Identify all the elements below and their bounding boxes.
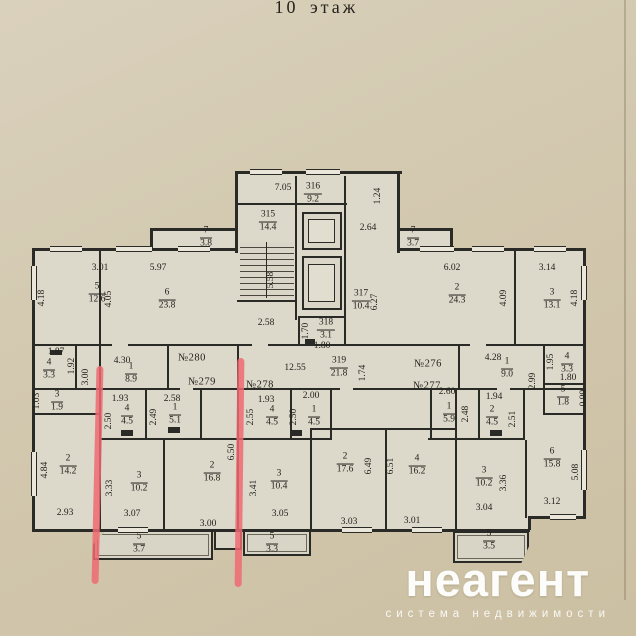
wall <box>237 438 332 440</box>
dim-label: 3.01 <box>92 264 109 274</box>
window <box>420 246 454 252</box>
room-label: 310.2 <box>476 467 493 490</box>
window <box>412 527 442 533</box>
doorway <box>252 344 268 346</box>
dim-label: 4.09 <box>500 290 510 307</box>
wall <box>200 390 202 440</box>
window <box>472 246 504 252</box>
dim-label: 2.49 <box>150 409 160 426</box>
room-label: 416.2 <box>409 455 426 478</box>
room-label: 512.6 <box>89 283 106 306</box>
room-label: 19.0 <box>501 358 513 381</box>
room-label: 217.6 <box>337 453 354 476</box>
window <box>31 452 37 496</box>
wall <box>385 428 387 530</box>
wall <box>163 440 165 530</box>
dim-label: 2.00 <box>303 392 320 402</box>
dim-label: 3.07 <box>124 510 141 520</box>
doorway <box>180 388 193 390</box>
floorplan-photo: 10 этаж <box>0 0 636 636</box>
dim-label: 2.51 <box>509 411 519 428</box>
room-label: 15.9 <box>443 403 455 426</box>
dim-label: 2.48 <box>462 406 472 423</box>
photo-edge-line <box>624 0 626 600</box>
room-label: 15.1 <box>169 404 181 427</box>
window <box>116 246 152 252</box>
wall <box>310 428 312 530</box>
room-label: 44.5 <box>121 405 133 428</box>
dim-label: 3.12 <box>544 498 561 508</box>
dim-label: 6.27 <box>371 294 381 311</box>
wall <box>310 428 457 430</box>
wall <box>514 250 516 346</box>
wall <box>295 176 297 320</box>
dim-label: 0.99 <box>580 390 590 407</box>
dim-label: 2.93 <box>57 509 74 519</box>
dim-label: 3.00 <box>82 369 92 386</box>
dim-label: 3.36 <box>500 475 510 492</box>
wall <box>167 344 169 390</box>
dim-label: 4.18 <box>571 290 581 307</box>
dim-label: 6.51 <box>387 458 397 475</box>
dim-label: 3.05 <box>272 510 289 520</box>
dim-label: 1.95 <box>547 354 557 371</box>
dim-label: 1.94 <box>486 393 503 403</box>
dim-label: 3.33 <box>106 480 116 497</box>
dim-label: 5.97 <box>150 264 167 274</box>
room-label: 73.7 <box>407 227 419 250</box>
wall <box>145 390 147 440</box>
wall <box>235 171 238 253</box>
unit-number: №278 <box>246 379 274 390</box>
balcony-bottom-left <box>93 530 213 560</box>
door-leaf <box>168 427 180 433</box>
dim-label: 3.00 <box>200 520 217 530</box>
window <box>550 514 576 520</box>
room-label: 14.5 <box>308 406 320 429</box>
wall <box>99 438 239 440</box>
room-label: 310.2 <box>131 472 148 495</box>
room-label: 31921.8 <box>330 357 348 380</box>
floor-title: 10 этаж <box>274 0 358 18</box>
wall <box>543 344 545 415</box>
dim-label: 1.80 <box>560 374 577 384</box>
wall <box>237 203 347 205</box>
dim-label: 2.64 <box>360 224 377 234</box>
window <box>306 169 340 175</box>
wall <box>237 300 297 302</box>
dim-label: 6.02 <box>444 264 461 274</box>
unit-number: №276 <box>414 358 442 369</box>
dim-label: 3.14 <box>539 264 556 274</box>
dim-label: 2.99 <box>529 373 539 390</box>
dim-label: 3.41 <box>250 480 260 497</box>
dim-label: 1.74 <box>359 365 369 382</box>
room-label: 313.1 <box>544 289 561 312</box>
wall <box>528 516 531 530</box>
room-label: 214.2 <box>60 455 77 478</box>
elevator-car <box>308 264 335 302</box>
dim-label: 3.01 <box>404 517 421 527</box>
room-label: 53.7 <box>133 533 145 556</box>
wall <box>330 390 332 440</box>
unit-number: №277 <box>413 380 441 391</box>
wall <box>523 390 525 440</box>
dim-label: 3.03 <box>341 518 358 528</box>
dim-label: 2.60 <box>439 388 456 398</box>
room-label: 43.3 <box>43 359 55 382</box>
door-leaf <box>290 430 302 436</box>
doorway <box>497 388 510 390</box>
room-label: 31.9 <box>51 391 63 414</box>
dim-label: 2.55 <box>247 409 257 426</box>
wall <box>430 390 432 440</box>
room-label: 18.9 <box>125 363 137 386</box>
room-label: 31514.4 <box>259 211 277 234</box>
wall <box>397 171 400 253</box>
dim-label: 1.80 <box>314 342 331 352</box>
room-label: 615.8 <box>544 448 561 471</box>
dim-label: 1.24 <box>374 188 384 205</box>
room-label: 44.5 <box>266 406 278 429</box>
dim-label: 2.50 <box>290 409 300 426</box>
dim-label: 4.05 <box>105 291 115 308</box>
wall <box>455 388 457 530</box>
room-label: 3183.1 <box>317 319 335 342</box>
room-label: 224.3 <box>449 284 466 307</box>
dim-label: 1.03 <box>33 393 43 410</box>
dim-label: 4.28 <box>485 354 502 364</box>
room-label: 31710.4 <box>352 290 370 313</box>
unit-number: №280 <box>178 352 206 363</box>
watermark-brand: неагент <box>385 556 610 603</box>
window <box>581 266 587 300</box>
window <box>534 246 566 252</box>
dim-label: 1.70 <box>302 323 312 340</box>
window <box>250 169 282 175</box>
doorway <box>112 344 128 346</box>
room-label: 623.8 <box>159 289 176 312</box>
dim-label: 12.55 <box>284 364 305 374</box>
wall <box>298 316 300 346</box>
dim-label: 4.84 <box>41 462 51 479</box>
room-label: 24.5 <box>486 406 498 429</box>
room-label: 53.5 <box>483 530 495 553</box>
watermark: неагент система недвижимости <box>385 556 610 620</box>
dim-label: 3.04 <box>476 504 493 514</box>
wall <box>543 413 585 415</box>
window <box>50 246 82 252</box>
unit-number: №279 <box>188 376 216 387</box>
elevator-car <box>308 219 335 243</box>
dim-label: 6.49 <box>365 458 375 475</box>
room-label: 310.4 <box>271 470 288 493</box>
wall <box>428 438 525 440</box>
wall <box>525 440 527 518</box>
dim-label: 2.58 <box>258 319 275 329</box>
room-label: 73.8 <box>200 227 212 250</box>
room-label: 43.3 <box>561 353 573 376</box>
room-label: 53.3 <box>266 533 278 556</box>
watermark-tagline: система недвижимости <box>385 608 610 620</box>
dim-label: 7.05 <box>275 184 292 194</box>
dim-label: 5.58 <box>267 272 277 289</box>
stair-divider <box>266 242 267 298</box>
wall <box>150 228 238 231</box>
staircase <box>240 242 294 298</box>
door-leaf <box>490 430 502 436</box>
doorway <box>470 344 486 346</box>
wall <box>344 176 346 346</box>
room-label: 3169.2 <box>304 183 322 206</box>
wall <box>32 413 101 415</box>
room-label: 51.8 <box>557 386 569 409</box>
dim-label: 2.50 <box>105 413 115 430</box>
door-leaf <box>121 430 133 436</box>
doorway <box>340 388 353 390</box>
wall <box>458 344 460 390</box>
dim-label: 1.92 <box>68 358 78 375</box>
room-label: 216.8 <box>204 462 221 485</box>
wall <box>478 390 480 440</box>
dim-label: 4.18 <box>38 290 48 307</box>
dim-label: 1.87 <box>48 348 65 358</box>
dim-label: 5.08 <box>572 464 582 481</box>
